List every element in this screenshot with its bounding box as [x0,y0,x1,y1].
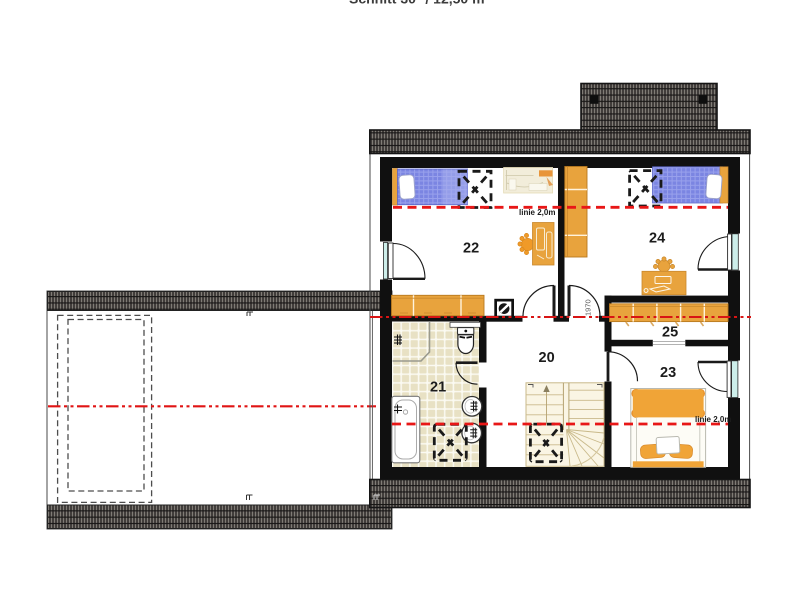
svg-text:linie 2,0m: linie 2,0m [519,208,555,217]
svg-text:1970: 1970 [584,299,593,316]
svg-text:22: 22 [463,241,479,257]
svg-text:linie 2,0m: linie 2,0m [695,415,731,424]
svg-text:25: 25 [662,325,678,341]
svg-text:24: 24 [649,231,665,247]
svg-text:21: 21 [430,380,446,396]
svg-text:23: 23 [660,365,676,381]
svg-text:Schnitt 30° / 12,50 m: Schnitt 30° / 12,50 m [349,0,485,7]
svg-text:20: 20 [539,350,555,366]
